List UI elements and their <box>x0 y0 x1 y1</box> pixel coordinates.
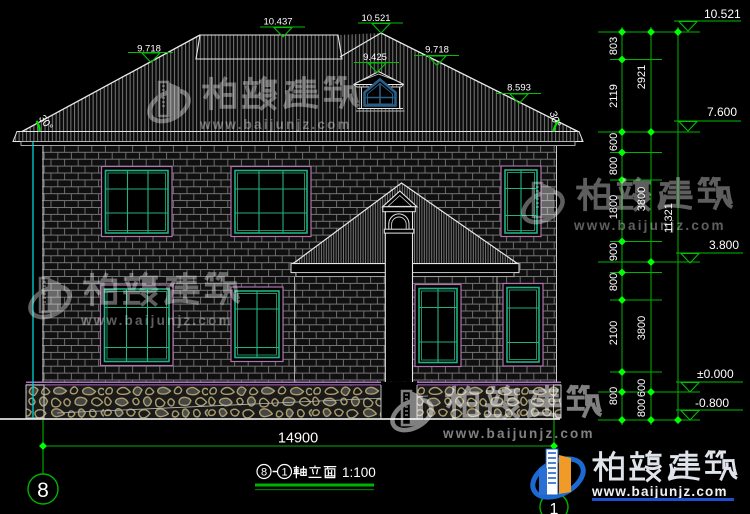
svg-text:3.800: 3.800 <box>709 238 739 252</box>
svg-text:10.437: 10.437 <box>263 17 292 28</box>
svg-text:8: 8 <box>37 479 49 502</box>
svg-text:803: 803 <box>608 37 620 55</box>
svg-text:-0.800: -0.800 <box>695 396 729 410</box>
svg-text:10.521: 10.521 <box>704 7 741 21</box>
svg-text:800: 800 <box>608 273 620 291</box>
svg-text:800: 800 <box>608 157 620 175</box>
svg-text:www.baijunjz.com: www.baijunjz.com <box>591 484 728 499</box>
svg-text:600: 600 <box>608 133 620 151</box>
svg-text:7.600: 7.600 <box>707 105 737 119</box>
svg-text:600: 600 <box>636 379 648 397</box>
svg-text:1:100: 1:100 <box>342 465 376 480</box>
svg-text:9.718: 9.718 <box>137 44 161 55</box>
svg-text:900: 900 <box>608 243 620 261</box>
svg-text:8: 8 <box>261 467 267 479</box>
svg-text:2100: 2100 <box>608 321 620 345</box>
svg-text:2119: 2119 <box>608 84 620 108</box>
svg-text:2921: 2921 <box>636 65 648 89</box>
svg-text:3800: 3800 <box>636 316 648 340</box>
svg-text:800: 800 <box>636 399 648 417</box>
svg-text:±0.000: ±0.000 <box>697 367 734 381</box>
svg-text:8.593: 8.593 <box>507 83 531 94</box>
svg-text:14900: 14900 <box>278 431 318 447</box>
svg-text:9.718: 9.718 <box>425 45 449 56</box>
svg-text:1: 1 <box>281 467 287 479</box>
svg-text:10.521: 10.521 <box>361 13 390 24</box>
svg-text:800: 800 <box>608 387 620 405</box>
svg-text:9.425: 9.425 <box>363 52 387 63</box>
svg-text:1: 1 <box>550 501 559 514</box>
